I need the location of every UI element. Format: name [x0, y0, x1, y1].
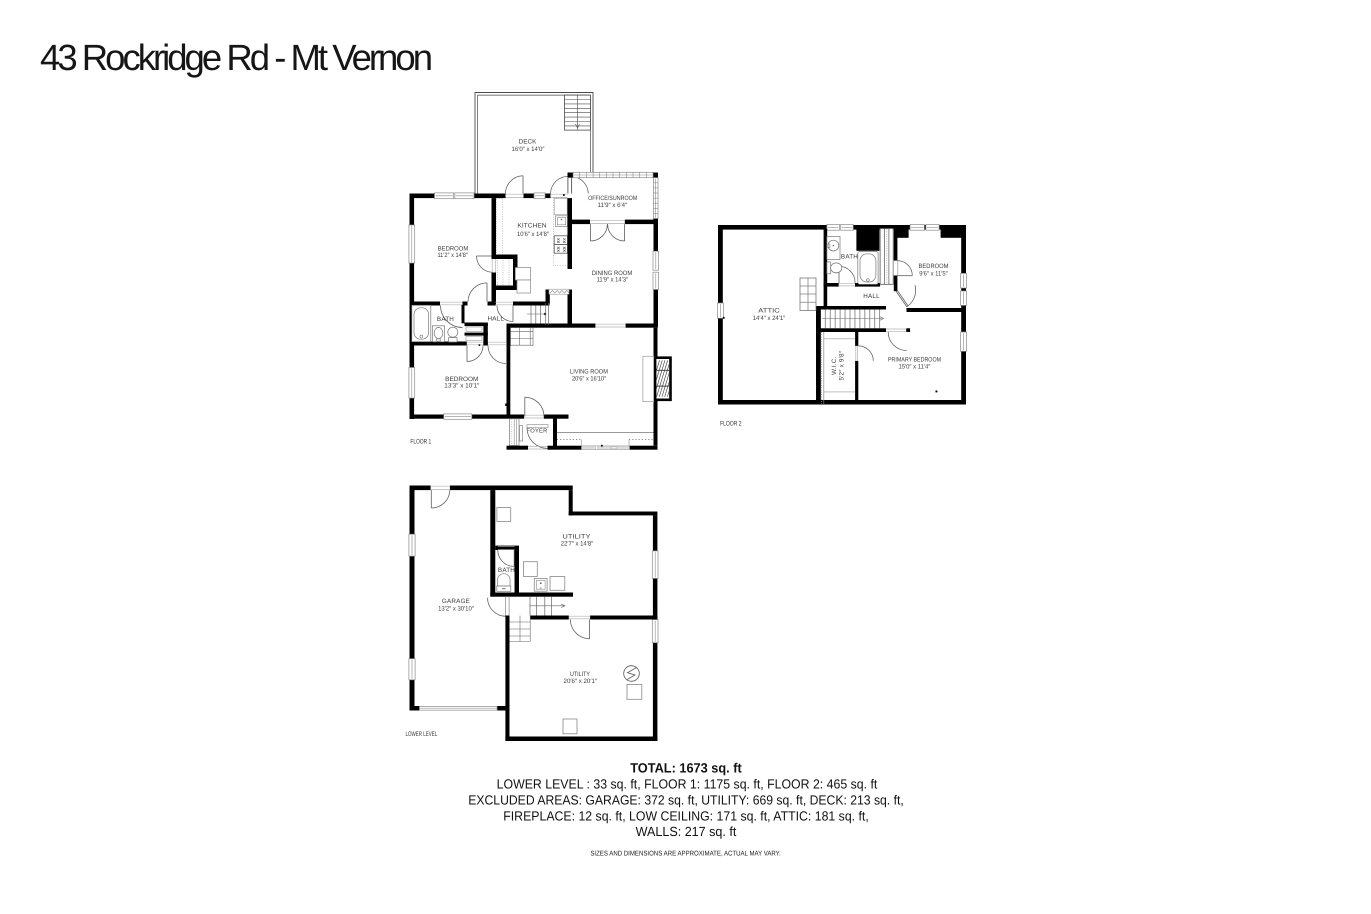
svg-text:DECK: DECK [519, 139, 538, 146]
svg-text:22′7″ x 14′8″: 22′7″ x 14′8″ [561, 541, 594, 548]
svg-text:13′2″ x 30′10″: 13′2″ x 30′10″ [438, 605, 474, 612]
svg-text:11′2″ x 14′8″: 11′2″ x 14′8″ [437, 252, 468, 259]
svg-text:11′9″ x 6′4″: 11′9″ x 6′4″ [598, 202, 628, 209]
svg-text:EXCLUDED AREAS: GARAGE: 372 sq: EXCLUDED AREAS: GARAGE: 372 sq. ft, UTIL… [468, 793, 904, 808]
svg-text:43 Rockridge Rd - Mt Vernon: 43 Rockridge Rd - Mt Vernon [40, 37, 433, 78]
svg-text:W.I.C.: W.I.C. [831, 356, 838, 374]
svg-text:GARAGE: GARAGE [442, 598, 470, 605]
svg-text:20′6″ x 16′10″: 20′6″ x 16′10″ [572, 375, 607, 382]
svg-text:FLOOR 2: FLOOR 2 [720, 421, 742, 428]
svg-text:LOWER LEVEL : 33 sq. ft, FLOOR: LOWER LEVEL : 33 sq. ft, FLOOR 1: 1175 s… [497, 777, 878, 792]
svg-text:TOTAL: 1673 sq. ft: TOTAL: 1673 sq. ft [630, 761, 742, 776]
svg-text:SIZES AND DIMENSIONS ARE APPRO: SIZES AND DIMENSIONS ARE APPROXIMATE, AC… [590, 851, 780, 858]
svg-text:9′6″ x 11′5″: 9′6″ x 11′5″ [919, 270, 948, 277]
svg-text:HALL: HALL [488, 315, 505, 322]
svg-text:11′9″ x 14′3″: 11′9″ x 14′3″ [597, 277, 629, 284]
svg-text:BATH: BATH [841, 253, 858, 260]
svg-text:20′6″ x 20′1″: 20′6″ x 20′1″ [564, 678, 598, 685]
svg-text:PRIMARY BEDROOM: PRIMARY BEDROOM [888, 356, 941, 363]
svg-text:10′6″ x 14′8″: 10′6″ x 14′8″ [517, 231, 550, 238]
svg-text:KITCHEN: KITCHEN [517, 222, 547, 229]
svg-text:HALL: HALL [863, 293, 880, 300]
svg-text:14′4″ x 24′1″: 14′4″ x 24′1″ [753, 315, 786, 322]
svg-text:13′3″ x 10′1″: 13′3″ x 10′1″ [444, 383, 480, 390]
svg-text:UTILITY: UTILITY [562, 534, 591, 541]
svg-text:FLOOR 1: FLOOR 1 [410, 438, 431, 445]
svg-text:BATH: BATH [498, 567, 515, 574]
svg-text:BEDROOM: BEDROOM [919, 263, 949, 270]
svg-text:BATH: BATH [437, 316, 454, 323]
svg-text:LOWER LEVEL: LOWER LEVEL [406, 731, 438, 738]
svg-text:15′0″ x 11′4″: 15′0″ x 11′4″ [898, 363, 931, 370]
svg-text:FOYER: FOYER [527, 427, 548, 434]
svg-text:16′0″ x 14′0″: 16′0″ x 14′0″ [512, 146, 546, 153]
svg-text:5′2″ x 9′8″: 5′2″ x 9′8″ [839, 350, 846, 380]
svg-text:WALLS: 217 sq. ft: WALLS: 217 sq. ft [636, 824, 737, 839]
svg-text:UTILITY: UTILITY [570, 671, 591, 678]
svg-text:FIREPLACE: 12 sq. ft, LOW CEIL: FIREPLACE: 12 sq. ft, LOW CEILING: 171 s… [503, 808, 869, 823]
svg-text:ATTIC: ATTIC [758, 308, 780, 315]
